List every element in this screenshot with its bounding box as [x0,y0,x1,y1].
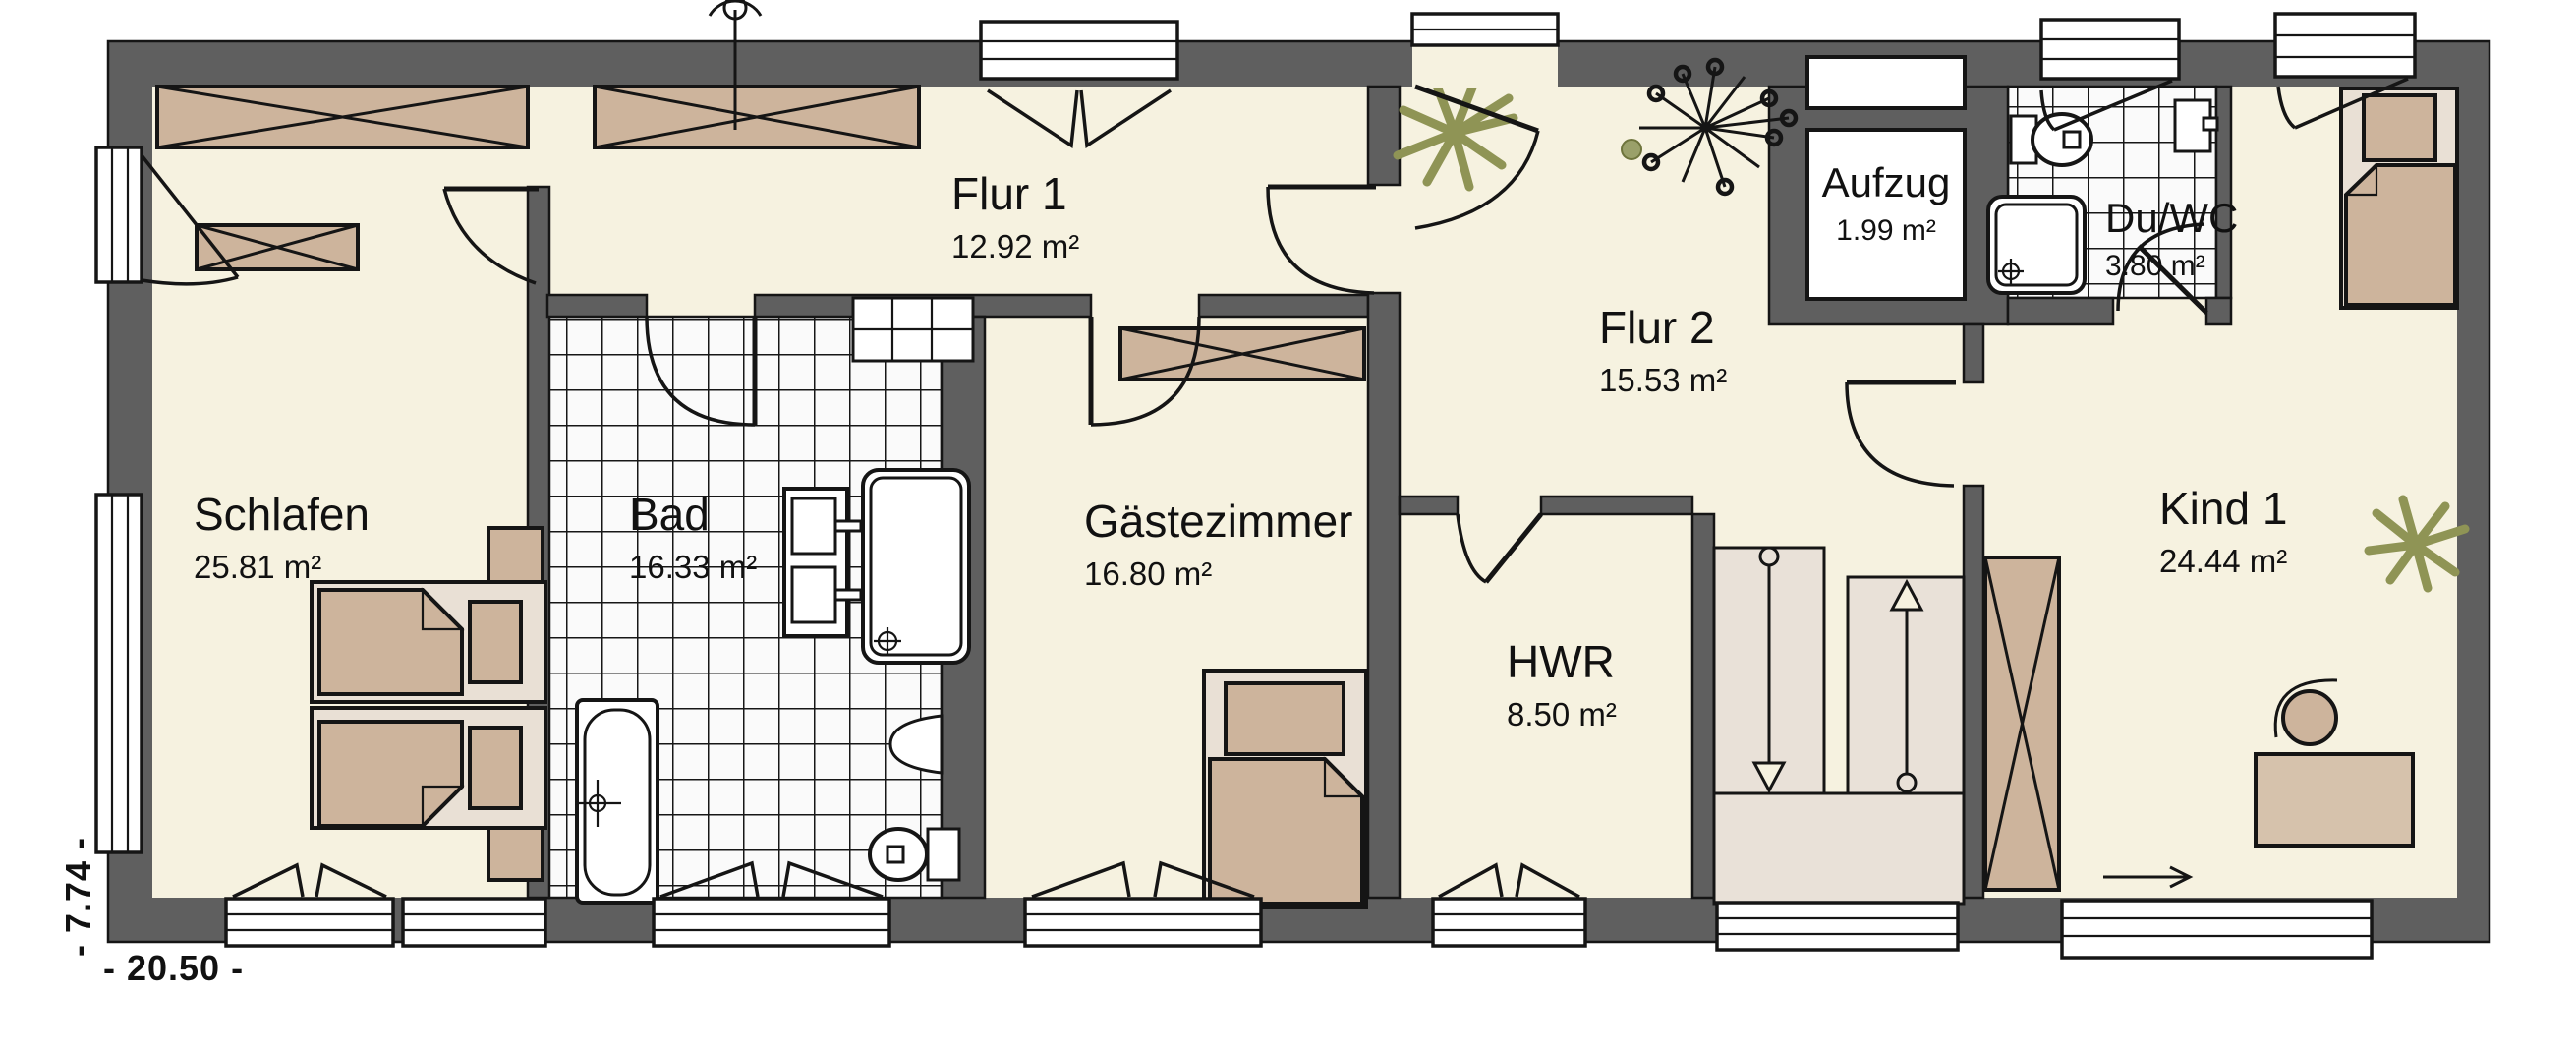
desk [2256,754,2413,846]
wardrobe [1120,328,1364,380]
terrace-window [2062,901,2372,958]
toilet [2011,114,2091,165]
bed [312,708,545,828]
shower [1988,197,2085,293]
dimension-width: - 20.50 - [103,948,244,989]
bed [312,582,545,702]
window [403,899,545,946]
toilet [870,829,959,880]
dimension-height: - 7.74 - [58,837,99,957]
window [96,495,142,852]
sideboard [197,225,358,269]
elevator [1807,57,1965,299]
radiator [853,298,973,361]
wardrobe [595,87,919,147]
floor-plan-drawing [0,0,2576,1053]
bathtub [575,700,658,903]
washbasin [2175,100,2217,151]
floor-plan: Schlafen 25.81 m² Flur 1 12.92 m² Bad 16… [0,0,2576,1053]
wardrobe [157,87,528,147]
nightstand [488,826,543,880]
wardrobe [1985,557,2059,890]
nightstand [488,528,543,582]
bed [2341,88,2457,308]
shower [863,470,969,663]
window [1717,903,1958,950]
bed [1204,671,1366,907]
